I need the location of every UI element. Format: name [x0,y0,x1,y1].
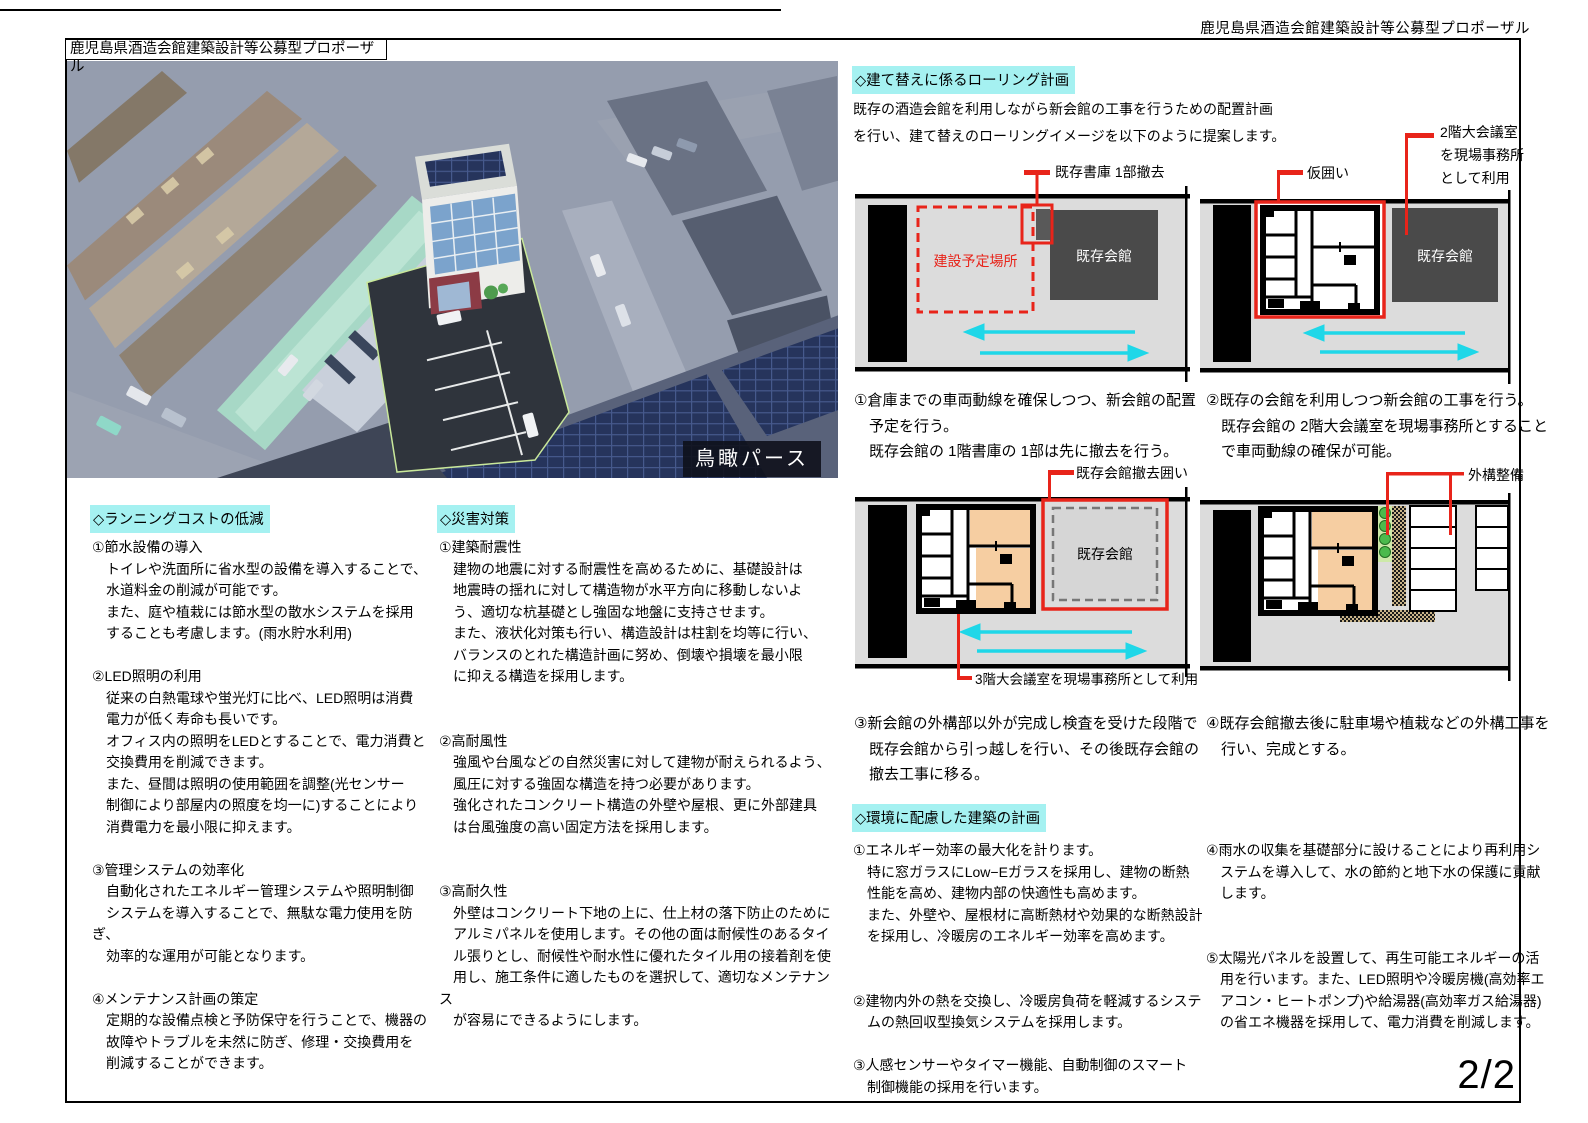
label-existing-hall-1: 既存会館 [1050,245,1158,268]
diagram-step1-graphic [852,160,1200,395]
heading-environment: ◇環境に配慮した建築の計画 [852,804,1046,832]
callout-temporary-fence: 仮囲い [1307,162,1349,185]
running-cost-body: ①節水設備の導入 トイレや洗面所に省水型の設備を導入することで、 水道料金の削減… [92,537,432,1075]
caption-step2: ②既存の会館を利用しつつ新会館の工事を行う。 既存会館の 2階大会議室を現場事務… [1206,388,1588,465]
caption-step3: ③新会館の外構部以外が完成し検査を受けた段階で 既存会館から引っ越しを行い、その… [854,711,1206,788]
callout-hall-demolition-fence: 既存会館撤去囲い [1076,462,1188,485]
callout-site-office-2f: 2階大会議室 を現場事務所 として利用 [1440,121,1542,190]
caption-step1: ①倉庫までの車両動線を確保しつつ、新会館の配置 予定を行う。 既存会館の 1階書… [854,388,1206,465]
label-construction-site: 建設予定場所 [918,250,1033,273]
photo-caption: 鳥瞰パース [683,441,821,477]
aerial-photo-illustration [67,61,838,478]
callout-warehouse-removal: 既存書庫 1部撤去 [1055,161,1165,184]
label-existing-hall-3: 既存会館 [1053,543,1157,566]
heading-disaster: ◇災害対策 [437,505,515,533]
page-number: 2/2 [1457,1053,1516,1098]
environment-col2: ④雨水の収集を基礎部分に設けることにより再利用シ ステムを導入して、水の節約と地… [1206,840,1561,1034]
diagram-step4: 外構整備 [1200,460,1545,710]
heading-running-cost: ◇ランニングコストの低減 [90,505,270,533]
caption-step4: ④既存会館撤去後に駐車場や植栽などの外構工事を 行い、完成とする。 [1206,711,1588,762]
label-existing-hall-2: 既存会館 [1392,245,1498,268]
environment-col1: ①エネルギー効率の最大化を計ります。 特に窓ガラスにLow−Eガラスを採用し、建… [853,840,1218,1098]
aerial-photo: 鳥瞰パース [67,61,838,478]
callout-site-office-3f: 3階大会議室を現場事務所として利用 [975,668,1198,691]
header-right-title: 鹿児島県酒造会館建築設計等公募型プロポーザル [1200,17,1530,38]
diagram-step3: 既存会館撤去囲い 既存会館 3階大会議室を現場事務所として利用 [852,458,1204,708]
diagram-step2: 仮囲い 2階大会議室 を現場事務所 として利用 既存会館 [1200,115,1545,395]
callout-exterior-works: 外構整備 [1468,464,1524,487]
diagram-step1: 既存書庫 1部撤去 建設予定場所 既存会館 [852,160,1200,395]
board-title: 鹿児島県酒造会館建築設計等公募型プロポーザル [65,39,387,60]
disaster-body: ①建築耐震性 建物の地震に対する耐震性を高めるために、基礎設計は 地震時の揺れに… [439,537,839,1032]
diagram-step4-graphic [1200,460,1545,710]
proposal-board-page: 鹿児島県酒造会館建築設計等公募型プロポーザル 鹿児島県酒造会館建築設計等公募型プ… [0,0,1588,1123]
heading-rolling-plan: ◇建て替えに係るローリング計画 [852,66,1075,94]
top-rule [0,9,781,11]
